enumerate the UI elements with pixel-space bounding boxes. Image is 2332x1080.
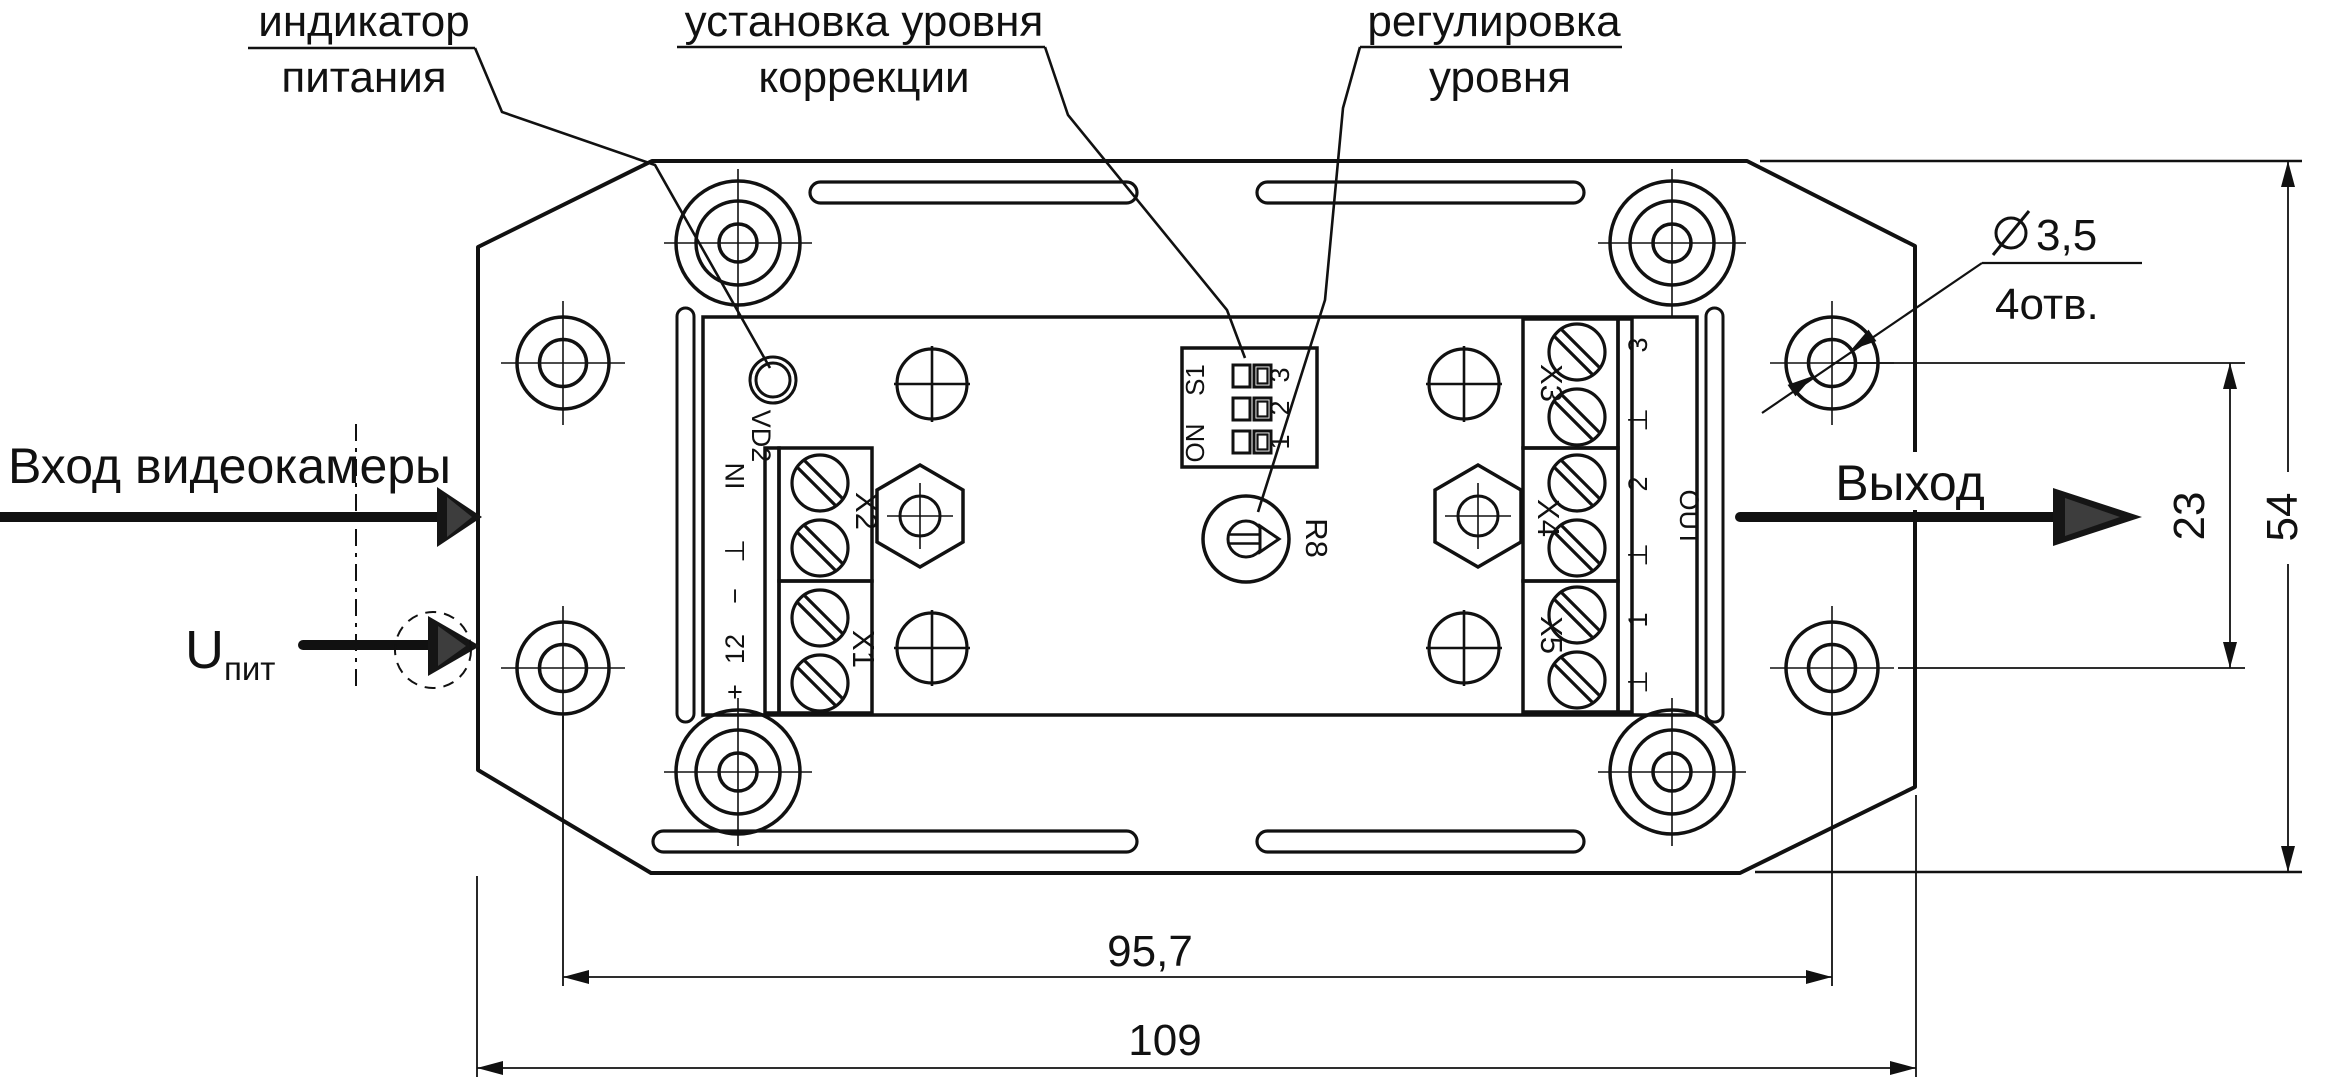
svg-text:12: 12 [720, 634, 750, 664]
pot-ref-label: R8 [1299, 518, 1334, 558]
dim-hole-diameter: 3,5 [2036, 211, 2097, 260]
svg-text:3: 3 [1623, 337, 1653, 352]
dim-holes-count: 4отв. [1995, 280, 2099, 329]
x3-ref-label: X3 [1534, 364, 1569, 402]
svg-text:3: 3 [1265, 367, 1295, 382]
svg-text:−: − [720, 588, 750, 604]
led-ref-label: VD2 [746, 410, 776, 463]
dim-hole-pitch-h: 95,7 [1107, 927, 1193, 976]
dip-on-label: ON [1180, 424, 1210, 463]
power-indicator-label: индикатор [258, 0, 469, 46]
dim-overall-width: 109 [1128, 1016, 1201, 1065]
level-adjust-label: регулировка [1367, 0, 1621, 46]
svg-text:коррекции: коррекции [758, 53, 969, 102]
diameter-symbol-icon [1993, 211, 2029, 255]
dip-ref-label: S1 [1180, 364, 1210, 396]
svg-text:питания: питания [281, 53, 446, 102]
svg-text:IN: IN [720, 463, 750, 490]
x4-ref-label: X4 [1531, 499, 1566, 537]
svg-text:2: 2 [1623, 476, 1653, 491]
x2-ref-label: X2 [849, 492, 884, 530]
camera-input-label: Вход видеокамеры [8, 438, 451, 494]
svg-text:⊥: ⊥ [1623, 543, 1653, 567]
technical-drawing: VD2 X2 X1 IN ⊥ − 12 + [0, 0, 2332, 1080]
svg-text:уровня: уровня [1429, 53, 1571, 102]
x5-ref-label: X5 [1534, 616, 1569, 654]
svg-text:⊥: ⊥ [1623, 408, 1653, 432]
svg-text:⊥: ⊥ [720, 539, 750, 563]
svg-text:⊥: ⊥ [1623, 670, 1653, 694]
camera-input-arrow [0, 487, 482, 547]
svg-text:+: + [720, 684, 750, 700]
dim-hole-pitch-v: 23 [2165, 492, 2214, 541]
callout-labels: индикатор питания установка уровня корре… [258, 0, 1621, 102]
x1-ref-label: X1 [846, 630, 881, 668]
output-label: Выход [1835, 455, 1985, 511]
correction-level-label: установка уровня [685, 0, 1044, 46]
svg-text:OUT: OUT [1674, 490, 1704, 547]
svg-text:1: 1 [1623, 612, 1653, 627]
dim-overall-height: 54 [2258, 493, 2307, 542]
supply-label: Uпит [185, 620, 275, 687]
